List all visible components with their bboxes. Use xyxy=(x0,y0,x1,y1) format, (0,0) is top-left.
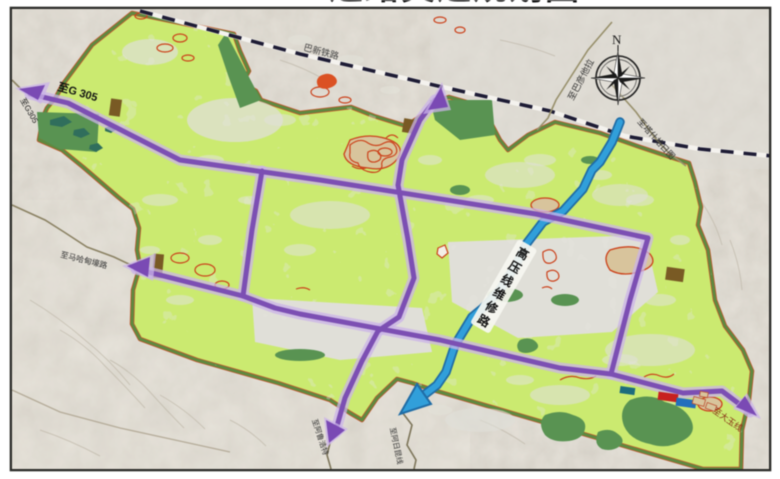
svg-text:N: N xyxy=(612,32,622,47)
svg-text:道路交通规划图: 道路交通规划图 xyxy=(329,0,581,7)
